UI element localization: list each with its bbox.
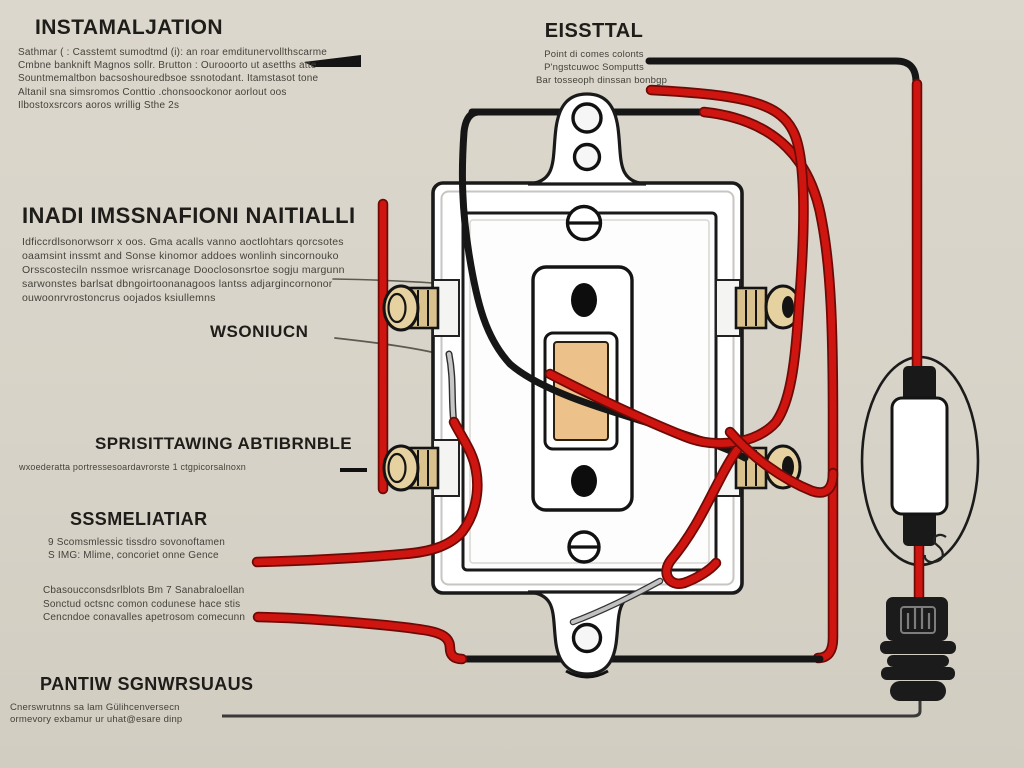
terminal-upper-left — [384, 286, 438, 330]
label-pantiw: PANTIW SGNWRSUAUS Cnerswrutnns sa lam Gü… — [10, 674, 253, 726]
plug-rib — [881, 667, 955, 680]
text-line: P'ngstcuwoc Somputts — [536, 61, 652, 74]
esstal-body: Point di comes colonts P'ngstcuwoc Sompu… — [536, 48, 652, 87]
mounting-hole — [573, 104, 601, 132]
rocker-dot-bottom — [571, 465, 597, 497]
terminal-lower-left — [384, 446, 438, 490]
black-wire-top-right — [649, 61, 916, 88]
text-line: ormevory exbamur ur uhat@esare dinp — [10, 714, 253, 726]
text-line: wxoederatta portressesoardavrorste 1 ctg… — [19, 462, 359, 473]
label-installation: INSTAMALJATION Sathmar ( : Casstemt sumo… — [18, 16, 327, 112]
label-midnote: Cbasoucconsdsrlblots Bm 7 Sanabraloellan… — [43, 584, 245, 625]
terminal-upper-right — [736, 286, 800, 328]
text-line: Bar tosseoph dinssan bonbgp — [536, 74, 652, 87]
switch-assembly — [384, 94, 800, 677]
inline-fuse — [892, 366, 947, 546]
text-line: oaamsint inssmt and Sonse kinomor addoes… — [22, 249, 355, 263]
switch-wiring-diagram — [0, 0, 1024, 768]
red-wire-lower-left — [258, 617, 462, 659]
text-line: Cmbne banknift Magnos sollr. Brutton : O… — [18, 59, 327, 72]
mounting-hole — [575, 145, 600, 170]
esstal-title: EISSTTAL — [536, 20, 652, 43]
plug-head — [886, 597, 948, 641]
sssmeliatiar-body: 9 Scomsmlessic tissdro sovonoftamen S IM… — [48, 536, 225, 562]
text-line: Sathmar ( : Casstemt sumodtmd (i): an ro… — [18, 46, 327, 59]
text-line: 9 Scomsmlessic tissdro sovonoftamen — [48, 536, 225, 549]
gray-wire-from-plug — [222, 700, 920, 716]
text-line: Idficcrdlsonorwsorr x oos. Gma acalls va… — [22, 235, 355, 249]
text-line: Altanil sna simsromos Conttio .chonsoock… — [18, 86, 327, 99]
mounting-hole — [574, 625, 601, 652]
text-line: Sountmemaltbon bacsoshouredbsoe ssnotoda… — [18, 72, 327, 85]
installation-title: INSTAMALJATION — [35, 16, 327, 40]
text-line: Orsscosteciln nssmoe wrisrcanage Dooclos… — [22, 263, 355, 277]
wiring-diagram-page: { "colors":{ "background":"#d7d3c8", "wi… — [0, 0, 1024, 768]
text-line: S IMG: Mlime, concoriet onne Gence — [48, 549, 225, 562]
text-line: Cbasoucconsdsrlblots Bm 7 Sanabraloellan — [43, 584, 245, 598]
text-line: sarwonstes barlsat dbngoirtoonanagoos la… — [22, 277, 355, 291]
label-inadi: INADI IMSSNAFIONI NAITIALLI Idficcrdlson… — [22, 203, 355, 305]
text-line: Point di comes colonts — [536, 48, 652, 61]
text-line: Ilbostoxsrcors aoros wrillig Sthe 2s — [18, 99, 327, 112]
plug-boot — [890, 681, 946, 701]
inadi-body: Idficcrdlsonorwsorr x oos. Gma acalls va… — [22, 235, 355, 305]
plug-rib — [880, 641, 956, 654]
plug-rib — [887, 655, 949, 667]
rocker-dot-top — [571, 283, 597, 317]
pantiw-title: PANTIW SGNWRSUAUS — [40, 674, 253, 695]
sprisittawing-body: wxoederatta portressesoardavrorste 1 ctg… — [19, 462, 359, 473]
label-sssmeliatiar: SSSMELIATIAR 9 Scomsmlessic tissdro sovo… — [48, 509, 225, 562]
wsoniucn-leader-line — [335, 338, 448, 356]
text-line: Cencndoe conavalles apetrosom comecunn — [43, 611, 245, 625]
label-sprisittawing: SPRISITTAWING ABTIBRNBLE wxoederatta por… — [19, 434, 359, 473]
fuse-body — [892, 398, 947, 514]
label-wsoniucn: WSONIUCN — [210, 322, 308, 342]
installation-body: Sathmar ( : Casstemt sumodtmd (i): an ro… — [18, 46, 327, 112]
label-esstal: EISSTTAL Point di comes colonts P'ngstcu… — [536, 20, 652, 87]
midnote-body: Cbasoucconsdsrlblots Bm 7 Sanabraloellan… — [43, 584, 245, 625]
text-line: ouwoonrvrostoncrus oojados ksiullemns — [22, 291, 355, 305]
text-line: Cnerswrutnns sa lam Gülihcenversecn — [10, 702, 253, 714]
inadi-title: INADI IMSSNAFIONI NAITIALLI — [22, 203, 355, 229]
pantiw-body: Cnerswrutnns sa lam Gülihcenversecn orme… — [10, 702, 253, 726]
sprisittawing-title: SPRISITTAWING ABTIBRNBLE — [95, 434, 359, 454]
text-line: Sonctud octsnc comon codunese hace stis — [43, 598, 245, 612]
sssmeliatiar-title: SSSMELIATIAR — [70, 509, 225, 530]
